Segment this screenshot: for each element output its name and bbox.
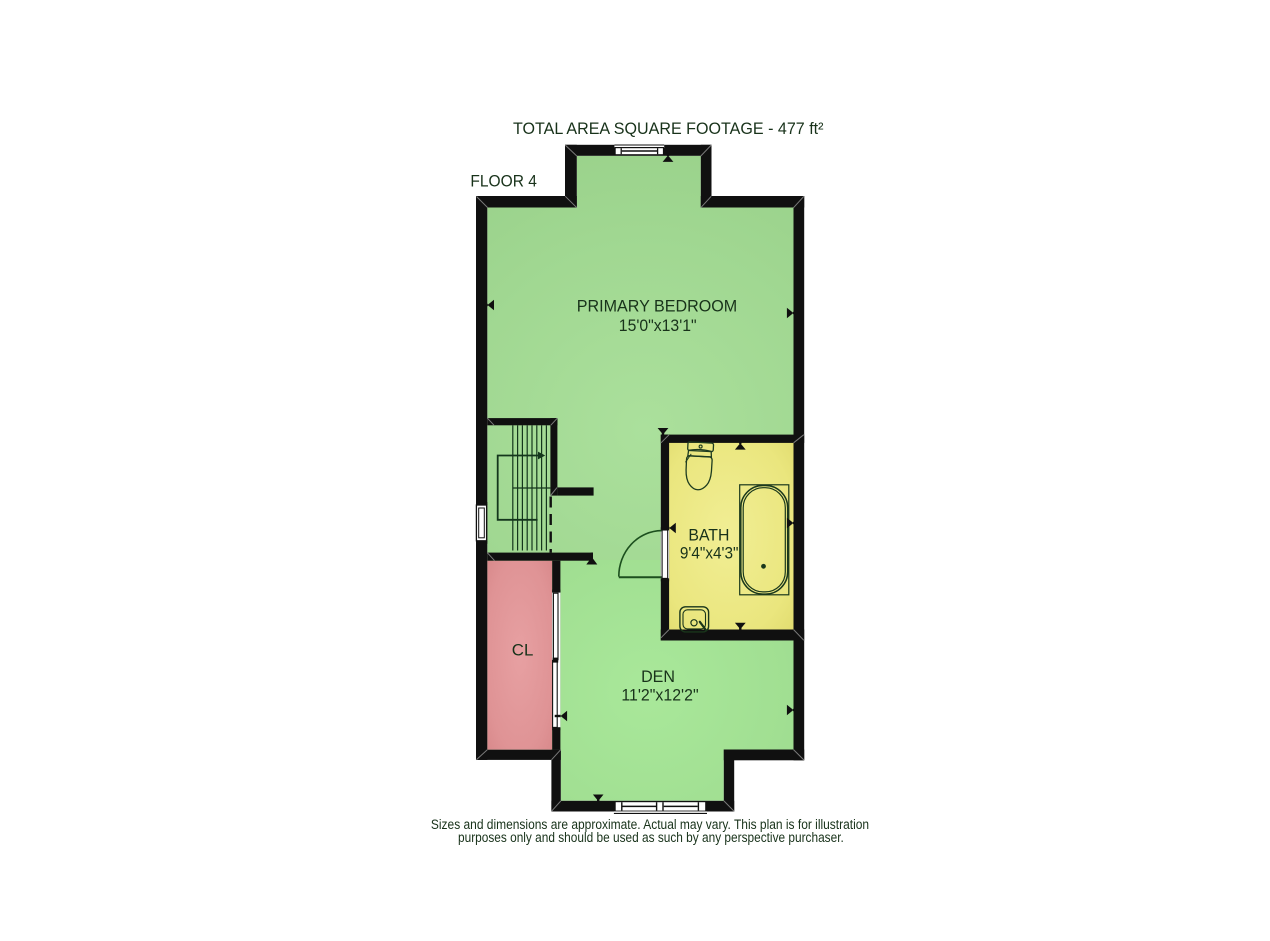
svg-text:9'4"x4'3": 9'4"x4'3" <box>680 544 739 563</box>
svg-text:FLOOR 4: FLOOR 4 <box>470 172 537 190</box>
svg-text:DEN: DEN <box>641 667 675 686</box>
svg-text:PRIMARY BEDROOM: PRIMARY BEDROOM <box>577 297 737 316</box>
svg-text:11'2"x12'2": 11'2"x12'2" <box>621 686 698 705</box>
svg-text:purposes only and should be us: purposes only and should be used as such… <box>458 830 844 845</box>
svg-text:15'0"x13'1": 15'0"x13'1" <box>619 316 697 335</box>
svg-text:BATH: BATH <box>688 525 729 544</box>
svg-text:CL: CL <box>512 641 534 660</box>
svg-text:TOTAL AREA SQUARE FOOTAGE - 47: TOTAL AREA SQUARE FOOTAGE - 477 ft² <box>513 119 824 138</box>
